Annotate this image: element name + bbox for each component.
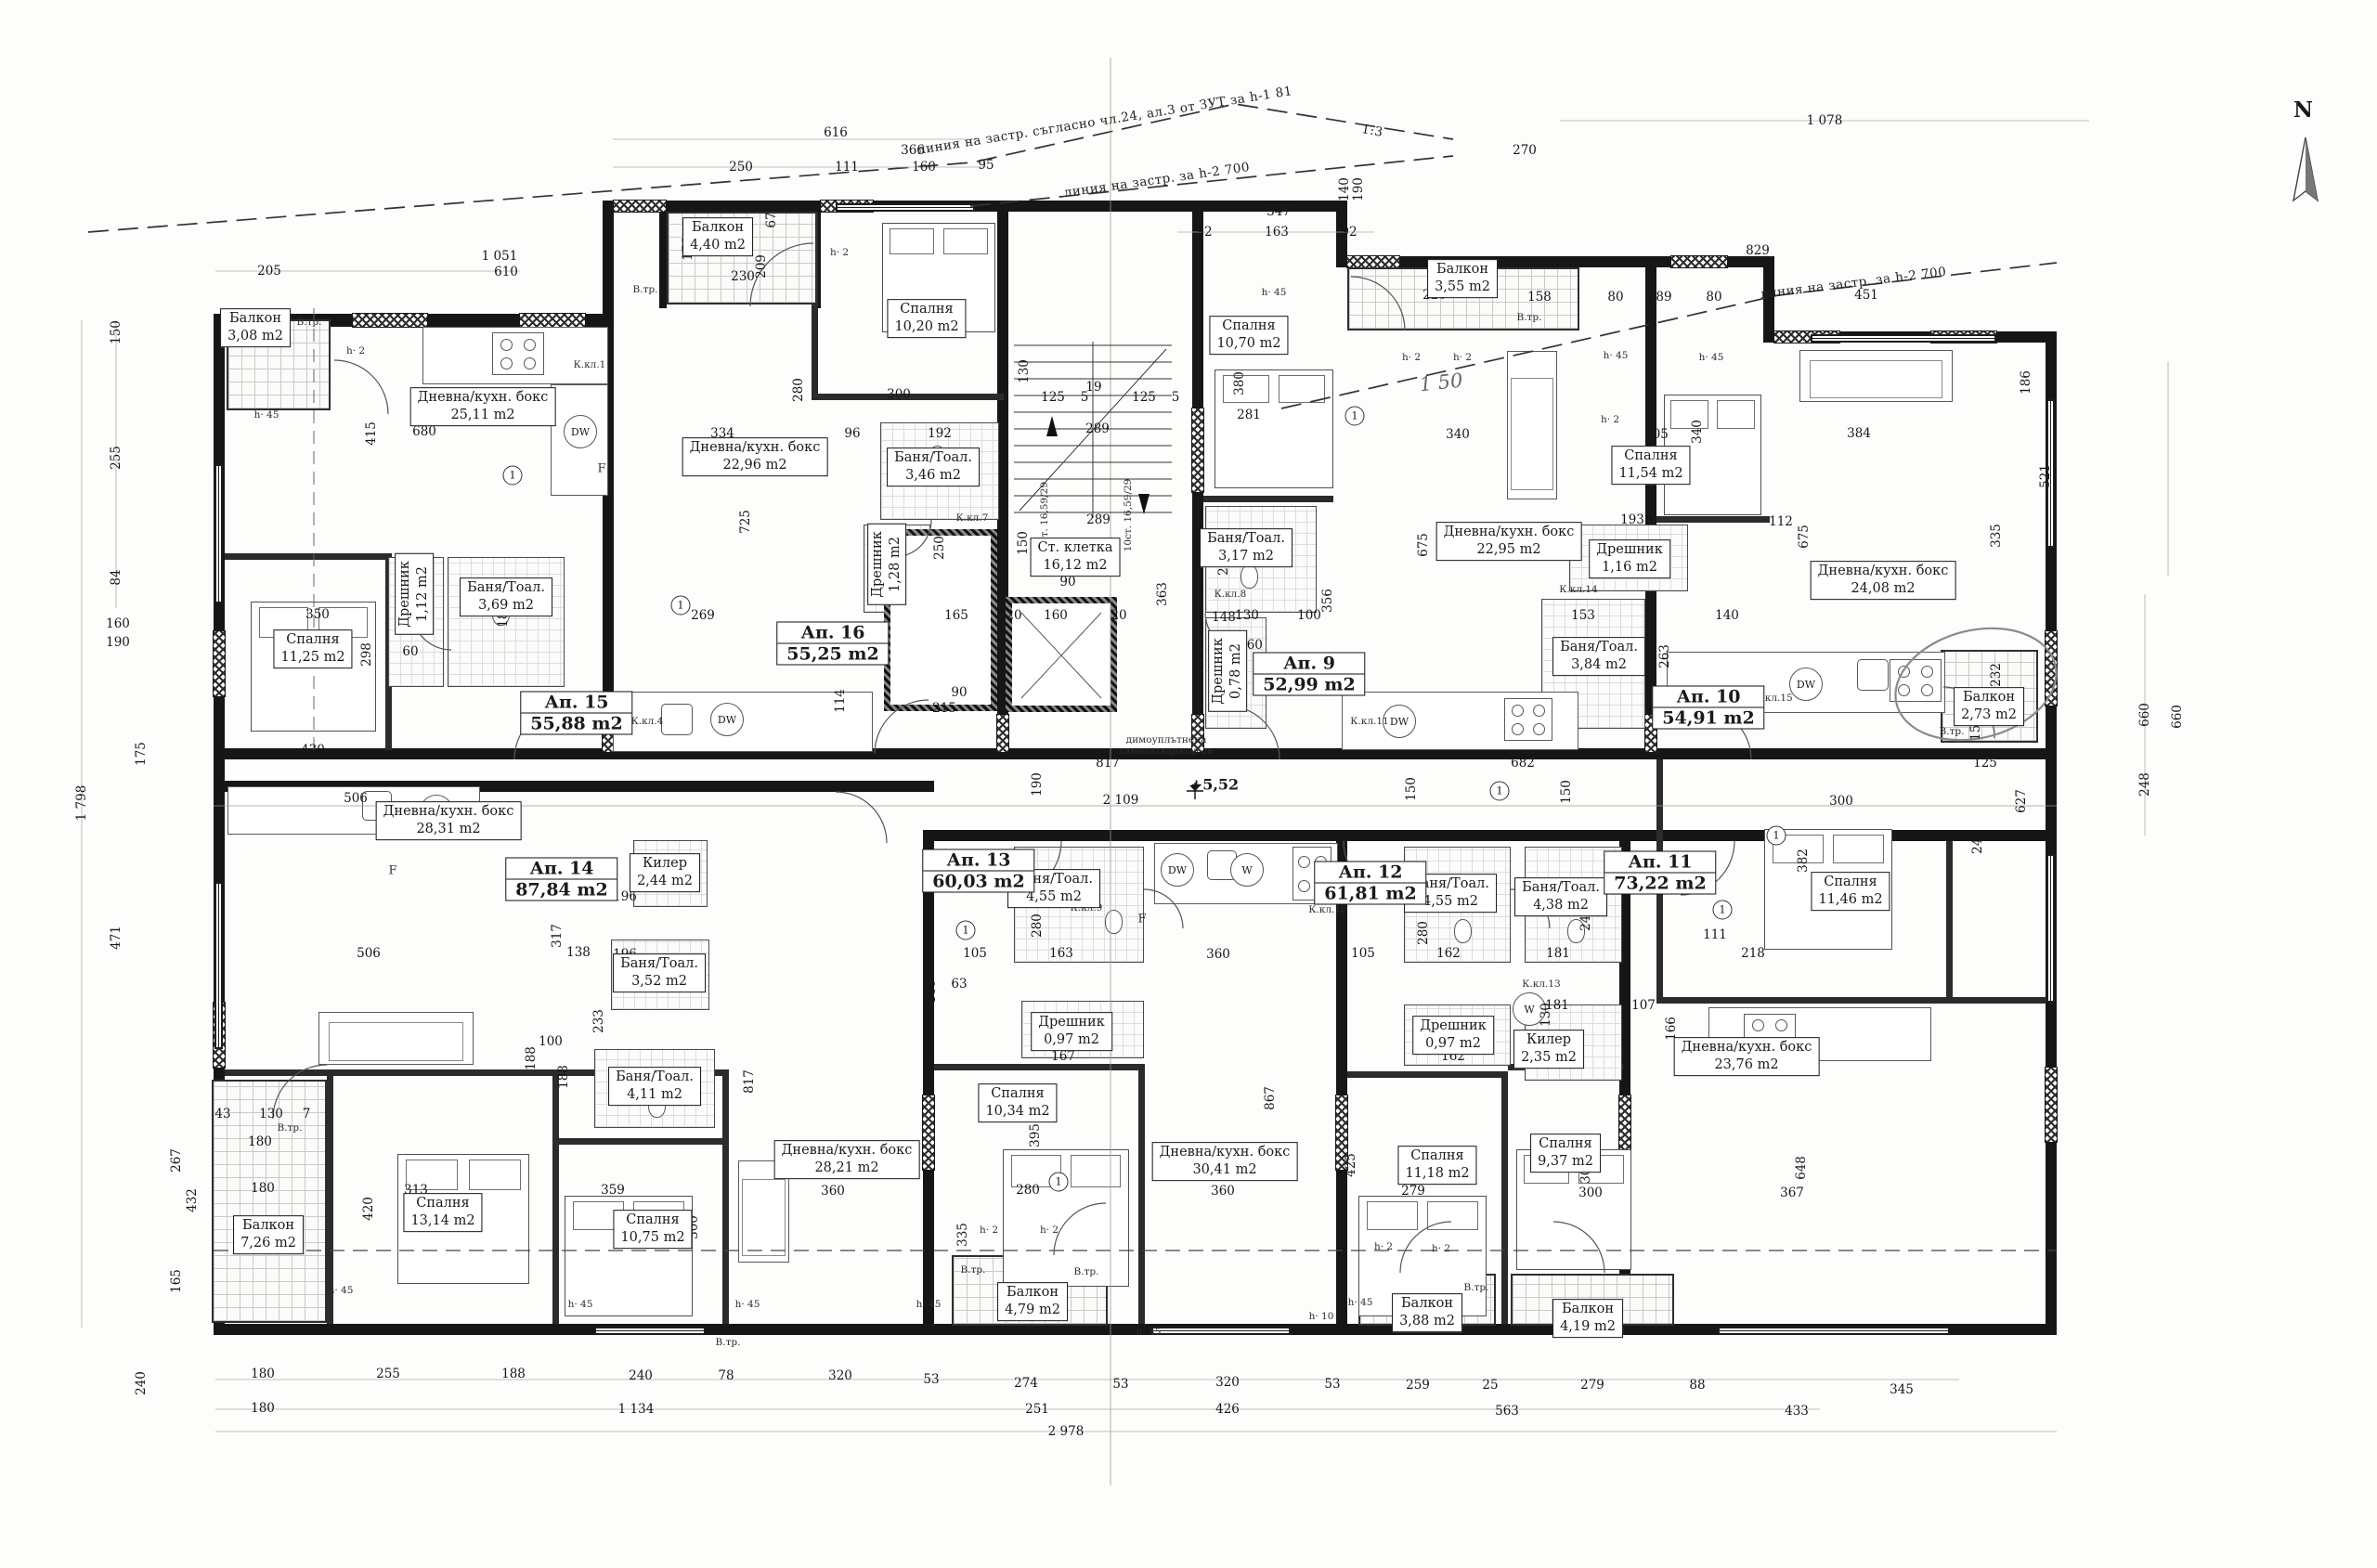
room-label: Дневна/кухн. бокс28,31 m2 — [376, 801, 522, 840]
apartment-area: 61,81 m2 — [1315, 884, 1425, 904]
dimension-text: 279 — [1580, 1378, 1604, 1393]
room-area: 2,35 m2 — [1521, 1050, 1577, 1065]
room-area: 1,16 m2 — [1602, 560, 1657, 575]
room-label: Баня/Тоал.3,17 m2 — [1200, 528, 1292, 567]
room-name: Спалня — [1222, 318, 1275, 333]
room-label: Балкон3,55 m2 — [1427, 259, 1498, 298]
dimension-text: 280 — [1016, 1183, 1040, 1198]
room-area: 10,70 m2 — [1216, 336, 1280, 351]
annotation-text: К.кл.11 — [1350, 716, 1388, 727]
dimension-text: 240 — [134, 1371, 149, 1395]
apartment-label: Ап. 1555,88 m2 — [520, 692, 632, 735]
dimension-text: 675 — [1797, 525, 1812, 549]
room-area: 0,97 m2 — [1044, 1032, 1099, 1047]
room-name: Балкон — [229, 311, 281, 326]
room-label: Дрешник0,97 m2 — [1412, 1016, 1494, 1055]
axis-marker: 1 — [503, 466, 523, 486]
annotation-text: В.тр. — [1940, 726, 1965, 737]
dimension-text: 190 — [106, 635, 130, 650]
room-area: 13,14 m2 — [410, 1213, 474, 1228]
room-area: 4,55 m2 — [1422, 894, 1478, 909]
dimension-text: 829 — [1746, 243, 1770, 258]
room-name: Балкон — [692, 220, 744, 235]
annotation-text: h· 2 — [1040, 1225, 1059, 1236]
dimension-text: 305 — [1644, 427, 1669, 442]
room-label: Спалня11,18 m2 — [1397, 1146, 1476, 1185]
room-area: 1,12 m2 — [415, 566, 430, 622]
annotation-text: h· 2 — [980, 1225, 998, 1236]
dimension-text: 7 — [303, 1107, 311, 1121]
dimension-text: 90 — [1059, 575, 1075, 590]
dimension-text: 425 — [1344, 1153, 1358, 1177]
room-label: Спалня10,70 m2 — [1209, 316, 1288, 355]
dimension-text: 280 — [1416, 921, 1431, 945]
apartment-id: Ап. 13 — [923, 850, 1033, 872]
annotation-text: h· 45 — [1604, 350, 1629, 361]
apartment-area: 52,99 m2 — [1253, 675, 1364, 695]
annotation-text: h· 45 — [254, 409, 279, 421]
room-name: Спалня — [1824, 875, 1877, 889]
apartment-label: Ап. 1487,84 m2 — [505, 858, 617, 901]
annotation-text: h· 2 — [1453, 352, 1472, 363]
apartment-area: 54,91 m2 — [1653, 708, 1763, 729]
dimension-text: 426 — [1215, 1402, 1240, 1417]
polygon — [1046, 416, 1058, 436]
dimension-text: 279 — [1401, 1184, 1425, 1199]
dimension-text: 521 — [2038, 464, 2053, 488]
room-name: Баня/Тоал. — [467, 580, 545, 595]
room-label: Дрешник1,28 m2 — [867, 524, 906, 605]
dimension-text: 163 — [1049, 946, 1073, 961]
dimension-text: 190 — [1030, 772, 1045, 797]
dimension-text: 215 — [932, 701, 956, 716]
axis-marker: 1 — [1713, 901, 1733, 920]
room-label: Балкон2,73 m2 — [1954, 687, 2024, 726]
room-area: 24,08 m2 — [1851, 581, 1915, 596]
room-label: Спалня10,75 m2 — [613, 1210, 692, 1249]
annotation-text: h· 2 — [830, 247, 849, 258]
polygon — [1138, 494, 1150, 514]
floor-plan: N Балкон3,08 m2Дневна/кухн. бокс25,11 m2… — [0, 0, 2377, 1568]
dimension-text: 817 — [1096, 756, 1120, 771]
dimension-text: 255 — [376, 1367, 400, 1381]
dimension-text: 259 — [1406, 1378, 1430, 1393]
dimension-text: 130 — [1235, 608, 1259, 623]
apartment-label: Ап. 1054,91 m2 — [1652, 686, 1764, 730]
dimension-text: 25 — [1482, 1378, 1498, 1393]
dimension-text: 96 — [844, 426, 860, 441]
room-name: Дневна/кухн. бокс — [690, 440, 821, 455]
room-name: Дневна/кухн. бокс — [1160, 1145, 1291, 1160]
dimension-text: 111 — [835, 160, 859, 175]
room-label: Балкон3,88 m2 — [1392, 1293, 1462, 1332]
room-area: 0,97 m2 — [1425, 1036, 1481, 1051]
room-area: 11,54 m2 — [1618, 466, 1682, 481]
apartment-area: 55,88 m2 — [521, 714, 631, 734]
dimension-text: 2 978 — [1048, 1424, 1085, 1439]
dimension-text: 1 051 — [482, 249, 518, 264]
dimension-text: 90 — [951, 685, 967, 700]
dimension-text: 817 — [742, 1069, 757, 1094]
dimension-text: 382 — [1796, 849, 1811, 873]
room-label: Спалня10,20 m2 — [887, 299, 966, 338]
room-label: Дневна/кухн. бокс24,08 m2 — [1811, 561, 1956, 600]
washer-icon: W — [1230, 853, 1264, 887]
annotation-text: В.тр. — [278, 1122, 303, 1134]
dimension-text: 80 — [1706, 290, 1721, 305]
room-area: 4,11 m2 — [627, 1087, 682, 1102]
annotation-text: В.тр. — [1464, 1282, 1489, 1293]
room-name: Дрешник — [1596, 542, 1663, 557]
dimension-text: 1 134 — [618, 1402, 655, 1417]
annotation-text: 10ст. 16,59/29 — [1123, 479, 1134, 552]
room-area: 10,75 m2 — [620, 1230, 684, 1245]
room-area: 30,41 m2 — [1192, 1162, 1256, 1177]
room-name: Балкон — [1007, 1285, 1059, 1300]
room-name: Баня/Тоал. — [894, 450, 972, 465]
dimension-text: 232 — [1989, 663, 2004, 687]
room-label: Дрешник1,12 m2 — [395, 553, 434, 635]
room-label: Балкон4,79 m2 — [997, 1282, 1068, 1321]
dimension-text: 43 — [214, 1107, 230, 1121]
dimension-text: 148 — [1212, 610, 1236, 625]
room-name: Балкон — [1963, 690, 2015, 705]
dimension-text: 471 — [109, 926, 123, 950]
room-area: 3,84 m2 — [1571, 657, 1627, 672]
dimension-text: 345 — [1890, 1382, 1914, 1397]
dimension-text: 130 — [1539, 1003, 1553, 1027]
dimension-text: 506 — [357, 946, 381, 961]
dimension-text: 140 — [1715, 608, 1739, 623]
dimension-text: 150 — [109, 320, 123, 344]
room-area: 2,44 m2 — [637, 874, 693, 888]
dimension-text: 300 — [1578, 1186, 1603, 1200]
dimension-text: 125 — [1132, 390, 1156, 405]
room-area: 25,11 m2 — [450, 408, 514, 422]
dimension-text: 150 — [1016, 531, 1031, 555]
dimension-text: 165 — [169, 1269, 184, 1293]
dimension-text: 675 — [1416, 533, 1431, 557]
room-label: Дрешник0,97 m2 — [1031, 1012, 1112, 1051]
annotation-text: В.тр. — [297, 317, 322, 328]
annotation-text: В.тр. — [633, 284, 658, 295]
dimension-text: 317 — [550, 924, 565, 948]
room-name: Балкон — [1401, 1296, 1453, 1311]
dimension-text: 150 — [1404, 777, 1419, 801]
dimension-text: 160 — [1044, 608, 1068, 623]
room-label: Дневна/кухн. бокс22,96 m2 — [682, 437, 828, 476]
dimension-text: 251 — [1025, 1402, 1049, 1417]
annotation-text: В.тр. — [1074, 1266, 1099, 1277]
floor-plan-sheet: N Балкон3,08 m2Дневна/кухн. бокс25,11 m2… — [0, 0, 2377, 1568]
dimension-text: 111 — [1703, 927, 1727, 942]
dimension-text: 150 — [1559, 780, 1574, 804]
dimension-text: 335 — [1989, 524, 2004, 548]
room-area: 1,28 m2 — [888, 537, 903, 592]
dimension-text: 255 — [109, 446, 123, 470]
dishwasher-icon: DW — [1789, 667, 1823, 701]
dishwasher-icon: DW — [564, 415, 597, 448]
dimension-text: 289 — [1085, 421, 1110, 436]
annotation-text: h· 2 — [1432, 1243, 1450, 1254]
room-area: 3,52 m2 — [631, 974, 687, 989]
annotation-text: h· 45 — [1137, 1327, 1162, 1338]
annotation-text: h· 45 — [1699, 352, 1724, 363]
dimension-text: 367 — [1780, 1186, 1804, 1200]
path — [1553, 1222, 1604, 1273]
apartment-label: Ап. 952,99 m2 — [1253, 653, 1365, 696]
dimension-text: 320 — [1215, 1375, 1240, 1390]
room-area: 3,08 m2 — [227, 329, 283, 343]
dimension-text: 395 — [1028, 1123, 1043, 1147]
dimension-text: 205 — [257, 264, 281, 279]
axis-marker: 1 — [671, 596, 691, 616]
room-name: Спалня — [1624, 448, 1677, 463]
dimension-text: 160 — [912, 160, 936, 175]
dimension-text: 267 — [169, 1148, 184, 1173]
dimension-text: 274 — [1014, 1376, 1038, 1391]
dimension-text: 105 — [1351, 946, 1375, 961]
dimension-text: 180 — [251, 1181, 275, 1196]
room-area: 4,79 m2 — [1005, 1302, 1060, 1317]
dimension-text: 363 — [1155, 582, 1170, 606]
dimension-text: 360 — [1211, 1184, 1235, 1199]
dimension-text: 60 — [402, 644, 418, 659]
room-area: 16,12 m2 — [1043, 558, 1107, 573]
dimension-text: 218 — [1741, 946, 1765, 961]
dimension-text: 1 078 — [1807, 113, 1843, 128]
axis-marker: 1 — [1345, 407, 1365, 426]
dimension-text: 130 — [1017, 359, 1032, 383]
dimension-text: 682 — [1511, 756, 1535, 771]
room-area: 10,34 m2 — [985, 1104, 1049, 1119]
dimension-text: 89 — [1656, 290, 1671, 305]
apartment-label: Ап. 1261,81 m2 — [1314, 862, 1426, 905]
room-label: Баня/Тоал.4,38 m2 — [1514, 877, 1607, 916]
fridge-label: F — [597, 462, 605, 476]
dimension-text: 5 — [1081, 390, 1089, 405]
room-name: Балкон — [1562, 1302, 1614, 1316]
room-label: Килер2,35 m2 — [1513, 1030, 1584, 1069]
dimension-text: 193 — [1620, 512, 1644, 527]
room-area: 3,55 m2 — [1435, 279, 1490, 294]
path — [1226, 706, 1279, 759]
dimension-text: 138 — [566, 945, 591, 960]
pencil-note: 1 50 — [1418, 369, 1463, 396]
dimension-text: 5 — [1172, 390, 1180, 405]
dimension-text: 163 — [1265, 225, 1289, 240]
dimension-text: 188 — [556, 1065, 571, 1089]
fridge-label: F — [388, 864, 396, 878]
room-label: Спалня11,25 m2 — [273, 629, 352, 668]
dimension-text: 181 — [1546, 946, 1570, 961]
dimension-text: 153 — [1571, 608, 1595, 623]
path — [1144, 889, 1183, 928]
room-area: 3,46 m2 — [905, 468, 961, 483]
dimension-text: 84 — [109, 569, 123, 585]
room-label: Ст. клетка16,12 m2 — [1031, 538, 1121, 577]
apartment-label: Ап. 1173,22 m2 — [1604, 851, 1716, 895]
room-label: Балкон3,08 m2 — [220, 308, 291, 347]
room-label: Спалня10,34 m2 — [978, 1083, 1057, 1122]
room-name: Спалня — [1410, 1148, 1463, 1163]
annotation-text: В.тр. — [716, 1337, 741, 1348]
dimension-text: 359 — [601, 1183, 625, 1198]
annotation-text: h· 2 — [1374, 1241, 1393, 1252]
dimension-text: 420 — [361, 1197, 376, 1221]
annotation-text: h· 2 — [1402, 352, 1421, 363]
overlay-linework — [0, 0, 2377, 1568]
room-name: Баня/Тоал. — [620, 956, 698, 971]
axis-marker: 1 — [956, 921, 976, 940]
dimension-text: 280 — [791, 378, 806, 402]
annotation-text: h· 45 — [329, 1285, 354, 1296]
dimension-text: 188 — [501, 1367, 526, 1381]
room-area: 22,96 m2 — [722, 458, 786, 473]
room-name: Дневна/кухн. бокс — [418, 390, 549, 405]
dimension-text: 430 — [301, 743, 325, 758]
dimension-text: 506 — [344, 791, 368, 806]
room-label: Балкон7,26 m2 — [233, 1215, 304, 1254]
dimension-text: 627 — [2014, 789, 2029, 813]
annotation-text: h· 45 — [735, 1299, 760, 1310]
axis-lines — [214, 58, 2057, 1485]
room-label: Баня/Тоал.3,46 m2 — [887, 447, 980, 486]
annotation-text: h· 45 — [1348, 1297, 1373, 1308]
dimension-text: 2 109 — [1103, 793, 1139, 808]
room-name: Спалня — [286, 632, 339, 647]
room-area: 4,40 m2 — [690, 238, 746, 253]
annotation-text: К.кл.1 — [574, 359, 606, 370]
dishwasher-icon: DW — [710, 703, 744, 736]
room-name: Дневна/кухн. бокс — [383, 804, 514, 819]
dimension-text: 180 — [248, 1134, 272, 1149]
dimension-text: 88 — [1689, 1378, 1705, 1393]
dimension-text: 188 — [524, 1046, 539, 1070]
room-area: 28,31 m2 — [416, 822, 480, 836]
room-name: Дрешник — [1420, 1018, 1487, 1033]
room-area: 3,88 m2 — [1399, 1314, 1455, 1328]
dimension-text: 340 — [1446, 427, 1470, 442]
room-area: 11,25 m2 — [280, 650, 344, 665]
dimension-text: 100 — [1297, 608, 1321, 623]
dimension-text: 160 — [106, 616, 130, 631]
apartment-id: Ап. 10 — [1653, 687, 1763, 708]
dimension-text: 190 — [1351, 177, 1366, 201]
room-area: 4,38 m2 — [1533, 898, 1589, 913]
dimension-text: 167 — [1051, 1049, 1075, 1064]
polyline — [970, 156, 1453, 206]
dimension-text: 125 — [1973, 756, 1997, 771]
dimension-text: 240 — [629, 1368, 653, 1383]
dimension-text: 248 — [2137, 772, 2152, 797]
room-area: 3,17 m2 — [1218, 549, 1274, 564]
dimension-text: 80 — [1607, 290, 1623, 305]
annotation-text: h· 45 — [1262, 287, 1287, 298]
annotation-text: h· 2 — [1601, 414, 1619, 425]
room-label: Балкон4,19 m2 — [1552, 1299, 1623, 1338]
dimension-text: 270 — [1513, 143, 1537, 158]
dimension-text: 360 — [821, 1184, 845, 1199]
dimension-text: 360 — [1206, 947, 1230, 962]
room-area: 7,26 m2 — [240, 1236, 296, 1251]
dimension-text: 105 — [963, 946, 987, 961]
apartment-area: 55,25 m2 — [777, 644, 888, 665]
room-label: Спалня9,37 m2 — [1530, 1134, 1601, 1173]
room-label: Баня/Тоал.3,69 m2 — [460, 577, 552, 616]
dimension-text: 160 — [924, 979, 939, 1004]
room-name: Баня/Тоал. — [616, 1069, 694, 1084]
room-area: 11,18 m2 — [1405, 1166, 1469, 1181]
dimension-text: 356 — [1320, 589, 1335, 613]
dimension-text: 380 — [1232, 371, 1247, 395]
axis-marker: 1 — [1767, 826, 1786, 846]
annotation-text: В.тр. — [961, 1264, 986, 1276]
apartment-id: Ап. 11 — [1604, 852, 1715, 874]
annotation-text: димоуплътнена — [1126, 734, 1207, 745]
room-area: 28,21 m2 — [814, 1160, 878, 1175]
room-name: Ст. клетка — [1038, 540, 1113, 555]
dimension-text: 250 — [729, 160, 753, 175]
dimension-text: 648 — [1794, 1156, 1809, 1180]
room-name: Дневна/кухн. бокс — [1444, 525, 1575, 539]
room-label: Дневна/кухн. бокс23,76 m2 — [1674, 1037, 1820, 1076]
room-name: Килер — [643, 856, 687, 871]
apartment-label: Ап. 1655,25 m2 — [776, 622, 889, 666]
room-label: Баня/Тоал.3,52 m2 — [613, 953, 706, 992]
room-label: Дневна/кухн. бокс25,11 m2 — [410, 387, 556, 426]
room-label: Дрешник0,78 m2 — [1208, 630, 1247, 712]
dimension-text: 114 — [833, 689, 848, 713]
dimension-text: 867 — [1263, 1086, 1278, 1110]
dimension-text: 660 — [2170, 705, 2185, 729]
annotation-text: К.кл.10 — [1308, 904, 1346, 915]
dimension-text: 130 — [259, 1107, 283, 1121]
room-label: Спалня11,54 m2 — [1611, 446, 1690, 485]
room-area: 3,69 m2 — [478, 598, 534, 613]
annotation-text: К.кл.13 — [1522, 978, 1560, 990]
dimension-text: 53 — [1112, 1377, 1128, 1392]
dimension-text: 20 — [1006, 608, 1021, 623]
dimension-text: 280 — [1030, 914, 1045, 938]
dimension-guide-lines — [82, 121, 2168, 1432]
dimension-text: 92 — [1341, 225, 1357, 240]
dimension-text: 20 — [1111, 608, 1126, 623]
dimension-text: 92 — [1196, 225, 1212, 240]
dimension-text: 250 — [932, 536, 947, 560]
room-area: 23,76 m2 — [1714, 1057, 1778, 1072]
apartment-id: Ап. 12 — [1315, 862, 1425, 884]
room-name: Спалня — [416, 1196, 469, 1211]
apartment-label: Ап. 1360,03 m2 — [922, 849, 1034, 893]
apartment-id: Ап. 15 — [521, 693, 631, 714]
dimension-text: 415 — [364, 421, 379, 446]
dimension-text: 725 — [738, 510, 753, 534]
room-label: Дневна/кухн. бокс30,41 m2 — [1152, 1142, 1298, 1181]
dimension-text: 112 — [1769, 514, 1793, 529]
room-area: 9,37 m2 — [1538, 1154, 1593, 1169]
dimension-text: 230 — [731, 269, 755, 284]
room-name: Дневна/кухн. бокс — [1818, 564, 1949, 578]
path — [875, 700, 929, 754]
annotation-text: h· 45 — [568, 1299, 593, 1310]
dimension-text: 162 — [1436, 946, 1461, 961]
path — [836, 792, 887, 843]
room-name: Дрешник — [397, 561, 412, 628]
room-name: Килер — [1526, 1032, 1571, 1047]
apartment-id: Ап. 14 — [506, 859, 617, 880]
room-area: 0,78 m2 — [1228, 643, 1243, 699]
